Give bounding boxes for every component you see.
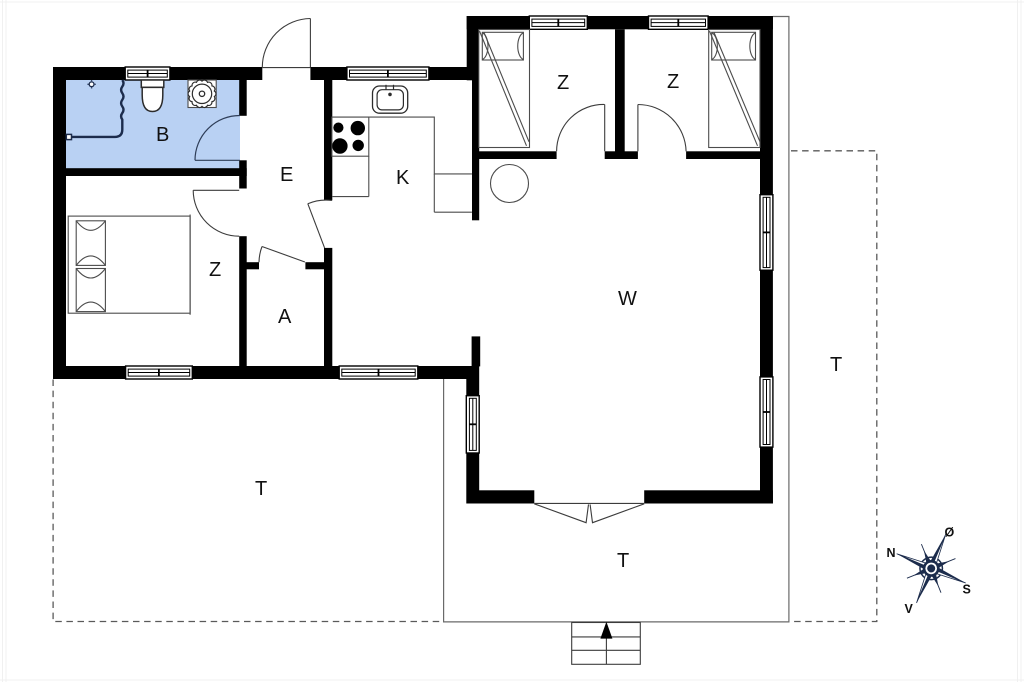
svg-text:V: V	[905, 602, 914, 616]
svg-text:E: E	[280, 164, 293, 186]
svg-text:T: T	[255, 478, 267, 500]
svg-text:Z: Z	[209, 259, 221, 281]
svg-text:B: B	[156, 124, 169, 146]
svg-text:A: A	[278, 306, 292, 328]
svg-text:S: S	[963, 583, 971, 597]
svg-text:T: T	[617, 550, 629, 572]
svg-text:T: T	[830, 354, 842, 376]
svg-text:Ø: Ø	[945, 526, 955, 540]
svg-text:W: W	[618, 288, 637, 310]
svg-text:N: N	[887, 546, 896, 560]
svg-text:K: K	[396, 167, 410, 189]
svg-text:Z: Z	[667, 71, 679, 93]
svg-text:Z: Z	[557, 72, 569, 94]
